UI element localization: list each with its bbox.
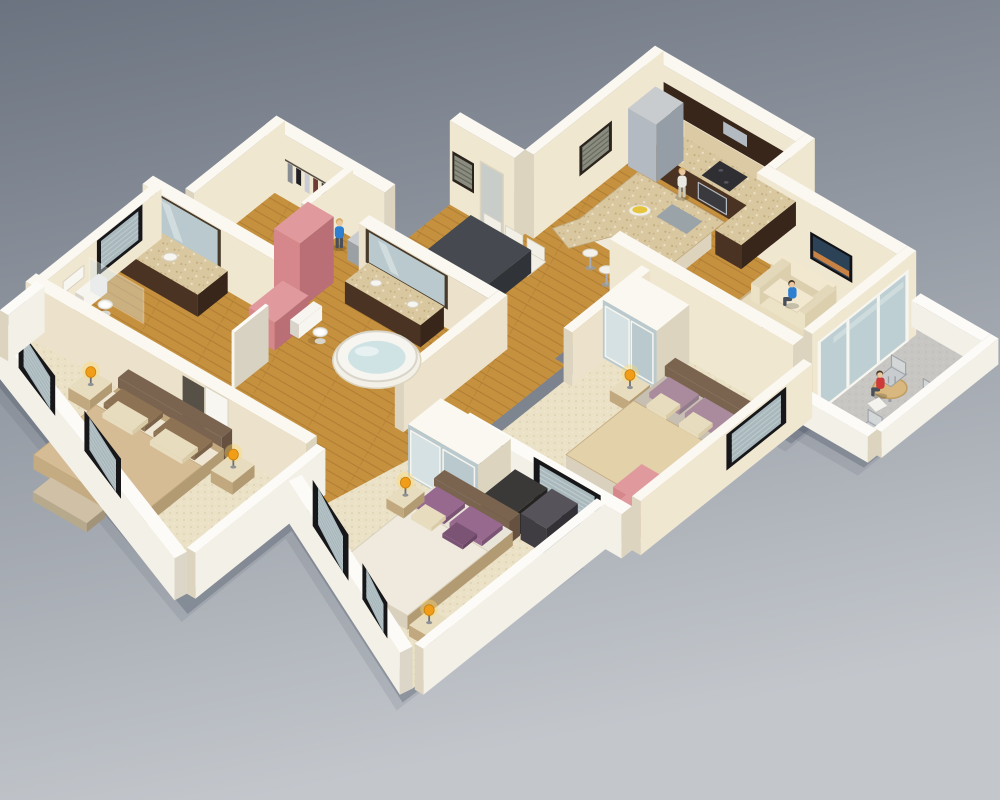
door-white-bath-west-front <box>232 331 235 389</box>
fruit-lemons <box>632 206 647 213</box>
person-kitchen-woman-leg <box>678 186 681 197</box>
vanity-sink-west <box>163 253 177 261</box>
lamp-bedroom2-west-shade <box>400 477 410 488</box>
floorplan-svg <box>0 0 1000 800</box>
person-hallway-blue-shirt-torso <box>335 226 344 238</box>
person-sofa-blue-torso <box>788 287 796 299</box>
lamp-master-east-base <box>230 465 236 468</box>
walkin-closet-clothes-rail-garment <box>305 173 310 194</box>
person-hallway-blue-shirt-shadow <box>332 245 346 251</box>
lamp-bedroom2-east-shade <box>424 605 434 616</box>
person-balcony-red-shin <box>871 387 874 396</box>
person-balcony-red-head <box>877 372 883 378</box>
toilet-center-bathroom-foot <box>315 338 326 344</box>
person-balcony-red-torso <box>876 377 884 389</box>
lamp-bedroom3-shade <box>625 370 635 381</box>
person-kitchen-woman-torso <box>678 175 687 187</box>
cooktop-burner-1 <box>718 169 723 172</box>
person-kitchen-woman-head <box>679 169 685 175</box>
lamp-bedroom2-west-base <box>402 494 408 497</box>
person-hallway-blue-shirt-leg <box>336 237 339 248</box>
wall-dining-northwest-cap <box>515 150 525 242</box>
bar-stool-1-seat <box>583 249 598 257</box>
vanity-sink-center-2 <box>407 301 418 307</box>
person-sofa-blue-shadow <box>785 303 799 309</box>
wall-bedroom3-west-cap <box>564 328 573 387</box>
person-balcony-red-shadow <box>873 393 887 399</box>
person-kitchen-woman-shadow <box>675 194 689 200</box>
person-sofa-blue-head <box>789 282 795 288</box>
wall-master-east-cap <box>187 548 196 599</box>
lamp-master-east-shade <box>228 449 238 460</box>
wall-kitchen-west-jog-cap <box>525 150 534 239</box>
wall-bedroom3-east-cap <box>632 496 641 555</box>
toilet-center-bathroom-seat <box>316 329 325 335</box>
lamp-master-west-base <box>88 383 94 386</box>
person-sofa-blue-shin <box>783 297 786 306</box>
walkin-closet-clothes-rail-garment <box>288 163 293 184</box>
vanity-sink-center-1 <box>370 280 381 286</box>
floorplan-scene <box>0 0 1000 800</box>
jacuzzi-tub-water <box>348 341 406 374</box>
person-kitchen-woman-leg <box>683 186 686 197</box>
lamp-bedroom3-base <box>627 386 633 389</box>
person-hallway-blue-shirt-head <box>337 220 343 226</box>
lamp-bedroom2-east-base <box>426 621 432 624</box>
jacuzzi-tub-sheen <box>355 346 379 356</box>
walkin-closet-clothes-rail-garment <box>296 168 301 186</box>
wall-master-southwest-cap <box>175 552 187 601</box>
lamp-master-west-shade <box>86 367 96 378</box>
wall-bedroom3-south-cap <box>622 506 632 558</box>
wall-master-west-stub-cap <box>0 310 8 361</box>
wall-bedroom2-east-cap <box>415 644 424 695</box>
person-hallway-blue-shirt-leg <box>340 237 343 248</box>
balcony-chair-1-leg <box>894 376 895 383</box>
balcony-chair-1-leg <box>888 376 889 383</box>
wall-bedroom2-southwest-cap <box>400 647 413 695</box>
cooktop-burner-2 <box>724 181 729 184</box>
